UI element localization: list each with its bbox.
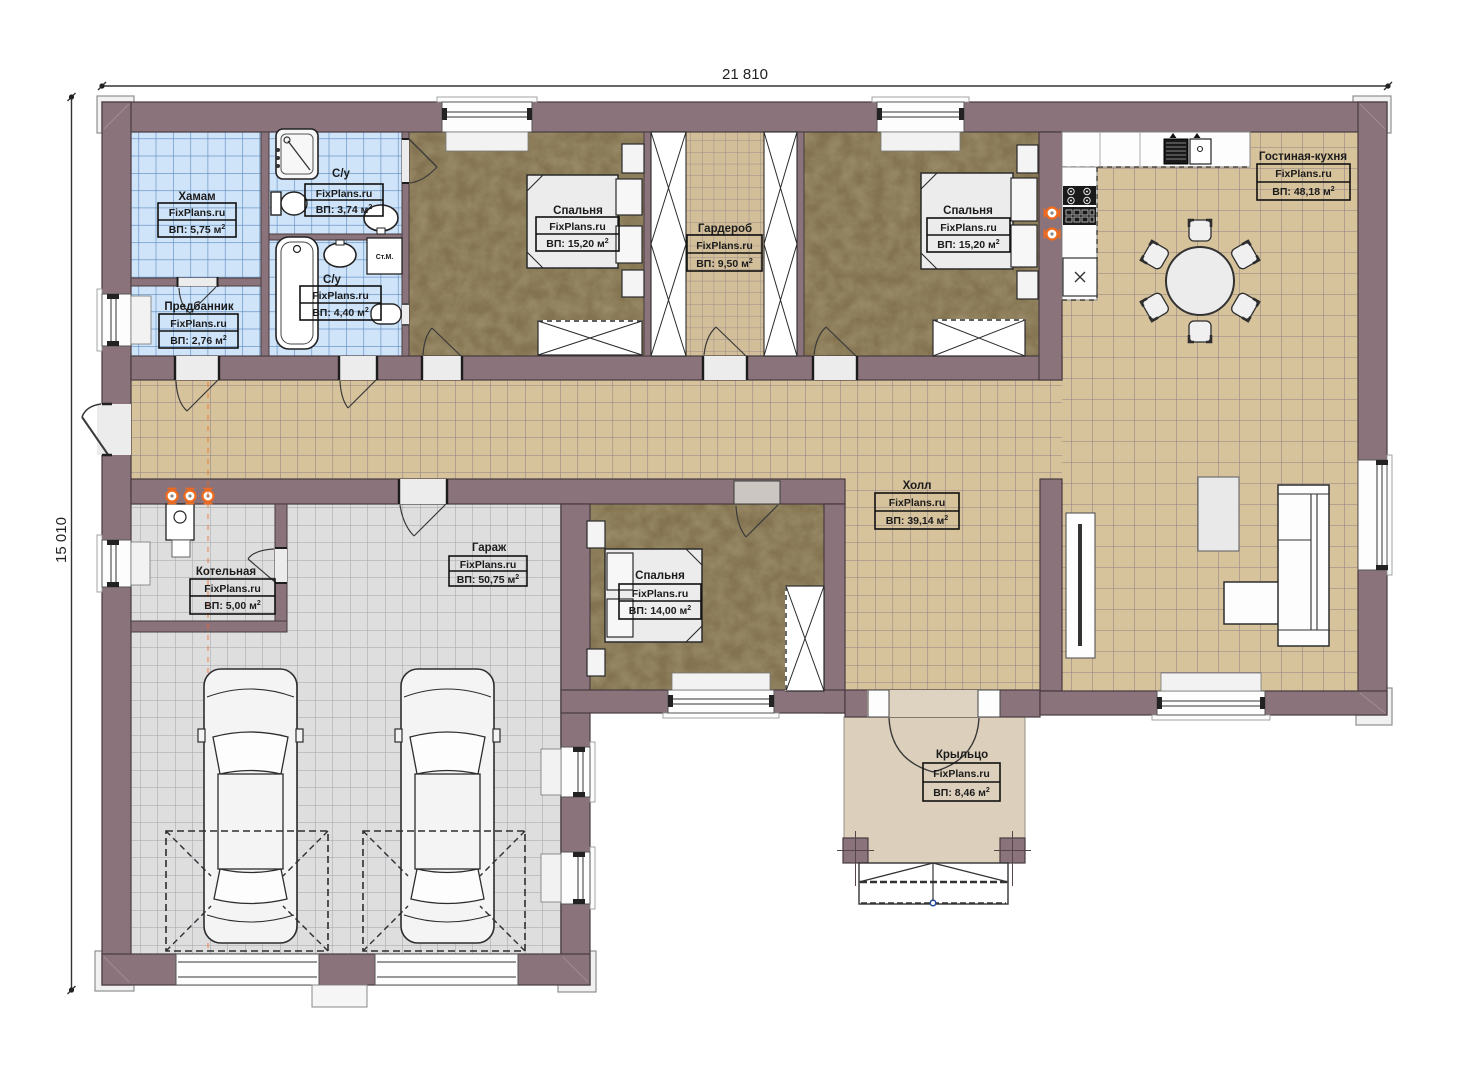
svg-text:FixPlans.ru: FixPlans.ru — [889, 497, 946, 509]
svg-text:FixPlans.ru: FixPlans.ru — [312, 290, 369, 302]
svg-text:ВП: 48,18 м2: ВП: 48,18 м2 — [1272, 186, 1335, 198]
svg-text:Спальня: Спальня — [943, 205, 993, 217]
svg-text:ВП: 4,40 м2: ВП: 4,40 м2 — [312, 307, 369, 319]
svg-text:ВП: 8,46 м2: ВП: 8,46 м2 — [933, 787, 990, 799]
svg-text:Ст.М.: Ст.М. — [376, 254, 394, 261]
svg-text:FixPlans.ru: FixPlans.ru — [204, 583, 261, 595]
svg-text:ВП: 50,75 м2: ВП: 50,75 м2 — [457, 574, 520, 586]
svg-text:FixPlans.ru: FixPlans.ru — [940, 222, 997, 234]
svg-text:ВП: 15,20 м2: ВП: 15,20 м2 — [546, 238, 609, 250]
svg-text:Спальня: Спальня — [553, 205, 603, 217]
svg-text:Гостиная-кухня: Гостиная-кухня — [1259, 151, 1347, 163]
svg-text:Гардероб: Гардероб — [698, 223, 752, 235]
svg-text:15 010: 15 010 — [53, 517, 70, 563]
svg-text:ВП: 5,75 м2: ВП: 5,75 м2 — [169, 224, 226, 236]
svg-text:FixPlans.ru: FixPlans.ru — [632, 588, 689, 600]
svg-text:FixPlans.ru: FixPlans.ru — [460, 559, 517, 571]
svg-text:FixPlans.ru: FixPlans.ru — [696, 240, 753, 252]
svg-text:Котельная: Котельная — [196, 566, 256, 578]
svg-text:Крыльцо: Крыльцо — [936, 749, 988, 761]
svg-text:С/у: С/у — [332, 168, 351, 180]
svg-text:ВП: 9,50 м2: ВП: 9,50 м2 — [696, 258, 753, 270]
svg-text:Спальня: Спальня — [635, 570, 685, 582]
svg-text:21 810: 21 810 — [722, 66, 768, 83]
svg-text:ВП: 15,20 м2: ВП: 15,20 м2 — [937, 239, 1000, 251]
svg-text:С/у: С/у — [323, 274, 342, 286]
svg-text:ВП: 3,74 м2: ВП: 3,74 м2 — [316, 204, 373, 216]
svg-text:ВП: 39,14 м2: ВП: 39,14 м2 — [886, 515, 949, 527]
svg-text:FixPlans.ru: FixPlans.ru — [170, 318, 227, 330]
svg-text:Хамам: Хамам — [178, 191, 215, 203]
svg-text:Предбанник: Предбанник — [164, 301, 233, 313]
svg-text:FixPlans.ru: FixPlans.ru — [549, 221, 606, 233]
svg-text:FixPlans.ru: FixPlans.ru — [933, 768, 990, 780]
svg-text:FixPlans.ru: FixPlans.ru — [169, 207, 226, 219]
svg-text:ВП: 2,76 м2: ВП: 2,76 м2 — [170, 335, 227, 347]
svg-text:FixPlans.ru: FixPlans.ru — [316, 188, 373, 200]
svg-text:Гараж: Гараж — [472, 542, 507, 554]
svg-text:Холл: Холл — [903, 480, 932, 492]
svg-text:FixPlans.ru: FixPlans.ru — [1275, 168, 1332, 180]
svg-text:ВП: 5,00 м2: ВП: 5,00 м2 — [204, 600, 261, 612]
svg-text:ВП: 14,00 м2: ВП: 14,00 м2 — [629, 605, 692, 617]
